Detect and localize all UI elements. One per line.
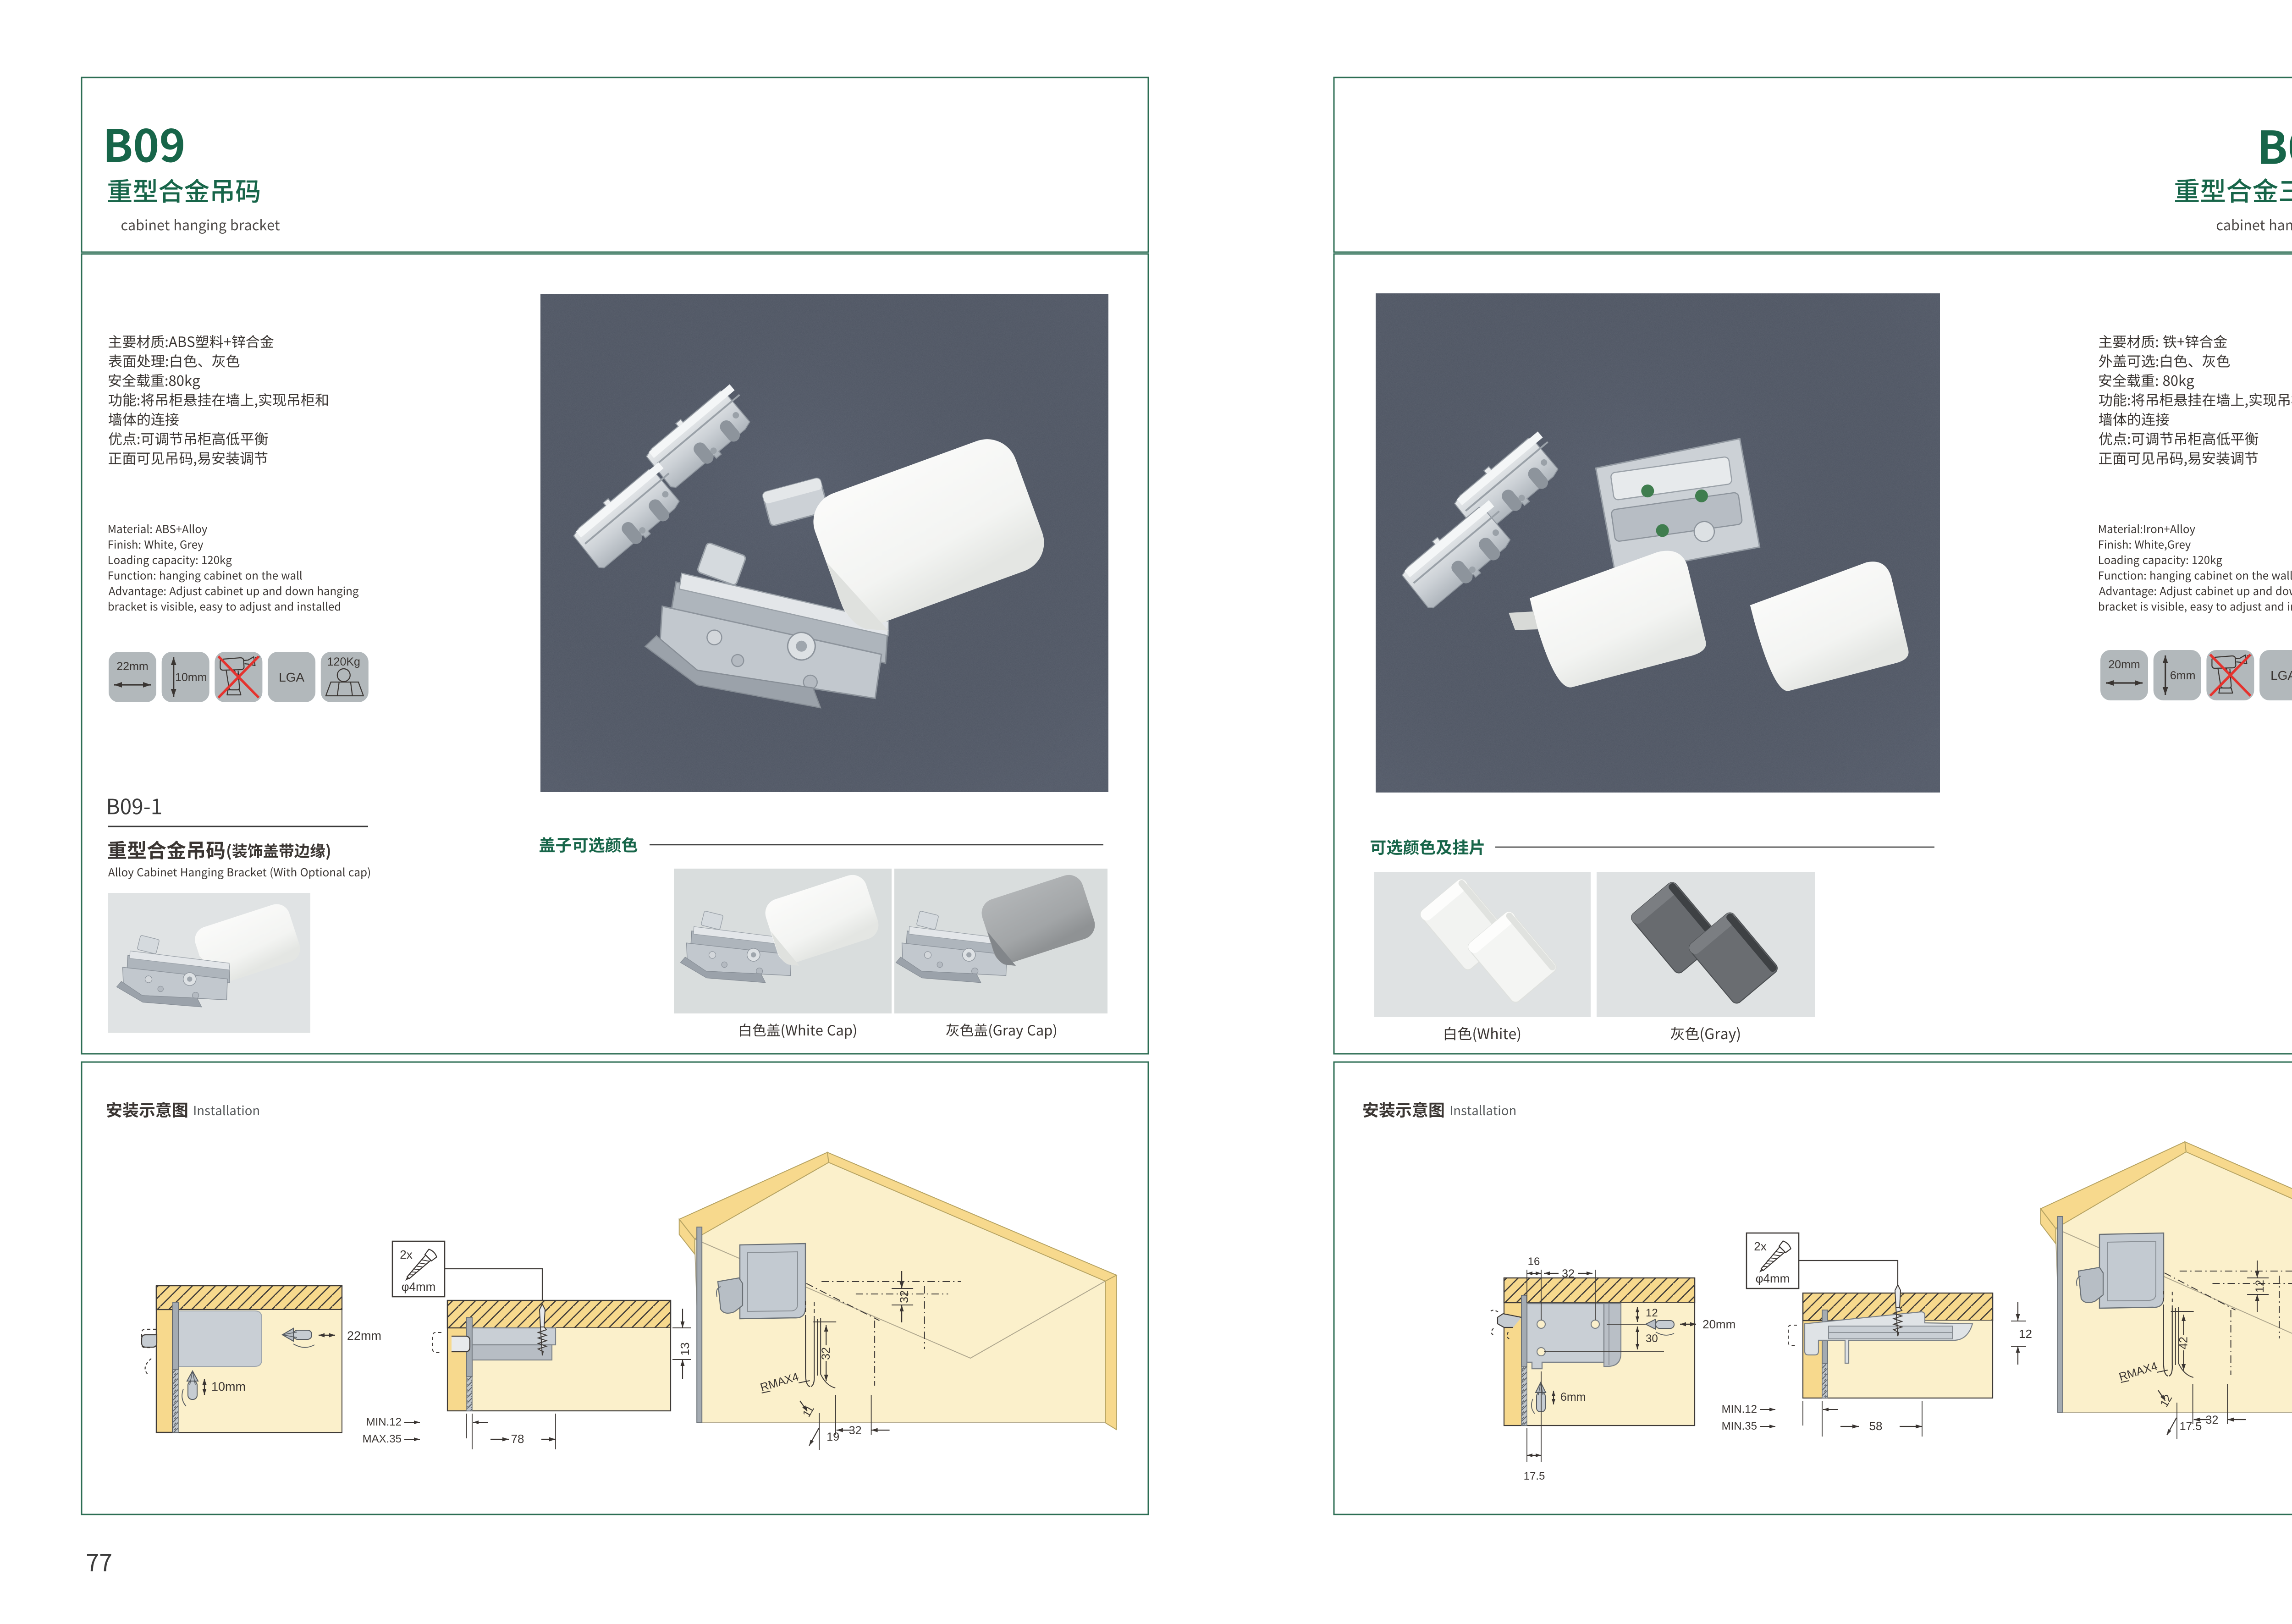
svg-text:MIN.12: MIN.12 [1722,1403,1757,1415]
svg-text:30: 30 [1646,1332,1658,1345]
svg-text:6mm: 6mm [2170,669,2196,682]
svg-text:22mm: 22mm [116,660,148,673]
svg-text:120Kg: 120Kg [327,655,360,668]
svg-text:12: 12 [2253,1280,2266,1293]
svg-text:32: 32 [849,1424,862,1437]
svg-text:φ4mm: φ4mm [1756,1272,1790,1285]
svg-text:78: 78 [511,1432,524,1446]
svg-text:58: 58 [1869,1419,1883,1433]
svg-text:LGA: LGA [2270,668,2292,683]
svg-text:12: 12 [2019,1327,2032,1341]
svg-text:20mm: 20mm [2108,658,2140,671]
svg-text:MIN.12: MIN.12 [366,1416,402,1428]
svg-text:32: 32 [1562,1267,1575,1280]
svg-text:10mm: 10mm [175,671,207,684]
svg-text:17.5: 17.5 [2180,1420,2202,1433]
svg-text:2x: 2x [400,1248,412,1261]
svg-text:6mm: 6mm [1560,1391,1586,1404]
svg-text:19: 19 [826,1431,839,1443]
svg-text:12: 12 [1646,1307,1658,1319]
svg-text:17.5: 17.5 [1524,1470,1545,1482]
svg-text:13: 13 [678,1343,692,1356]
svg-text:16: 16 [1528,1255,1540,1268]
svg-text:32: 32 [898,1290,911,1303]
svg-text:MAX.35: MAX.35 [363,1433,402,1445]
svg-text:42: 42 [2177,1337,2190,1349]
svg-text:MIN.35: MIN.35 [1722,1420,1757,1432]
svg-text:32: 32 [820,1347,832,1360]
svg-text:20mm: 20mm [1702,1317,1736,1331]
svg-text:φ4mm: φ4mm [402,1280,436,1294]
svg-text:32: 32 [2206,1414,2219,1426]
svg-text:LGA: LGA [279,670,304,684]
svg-text:22mm: 22mm [347,1329,381,1343]
svg-text:2x: 2x [1754,1239,1766,1253]
svg-text:10mm: 10mm [211,1380,246,1393]
